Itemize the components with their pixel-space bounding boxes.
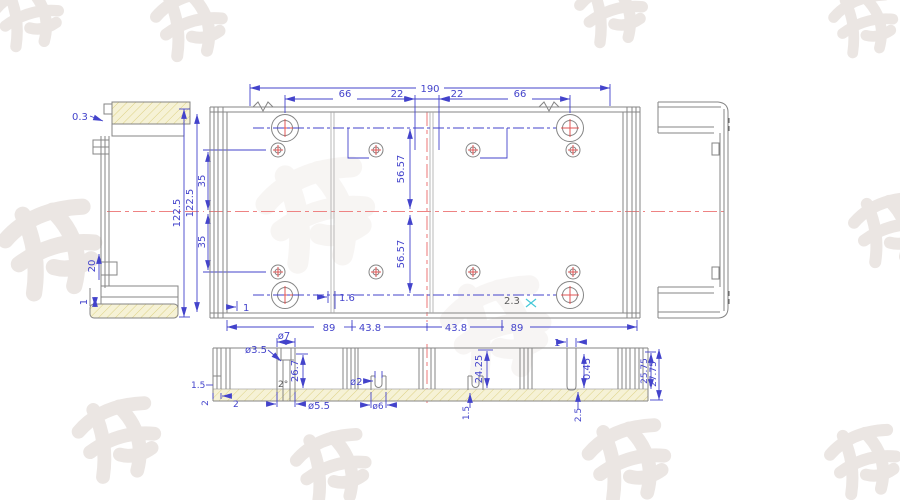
drawing-canvas: 0.3 20 1 122.5 122.5 35 35 — [0, 0, 900, 500]
dim-width-left: 66 — [339, 89, 352, 100]
dim-wall: 2.3 — [504, 296, 520, 307]
dim-corner-c: 2 — [233, 400, 239, 410]
dim-pitch-upper: 56.57 — [396, 155, 407, 184]
dim-width-center-left: 22 — [391, 89, 404, 100]
dim-width-total: 190 — [420, 84, 439, 95]
dim-width-center-right: 22 — [451, 89, 464, 100]
dim-height-total: 122.5 — [172, 199, 183, 228]
dim-channel-offset: 1.5 — [462, 406, 472, 420]
dim-offset-lower: 35 — [197, 236, 208, 249]
left-dimensions: 122.5 122.5 35 35 — [172, 109, 266, 317]
dim-taper: 0.45 — [582, 358, 593, 380]
side-view-right — [658, 102, 729, 318]
dim-corner-b: 2 — [201, 400, 211, 406]
dim-slot-width: 1 — [554, 338, 560, 349]
dim-channel-dia: ø6 — [372, 402, 384, 412]
dim-boss-wall: 1 — [243, 303, 249, 314]
centerlines — [107, 112, 724, 403]
dim-height-c: 27.75 — [649, 361, 659, 387]
dim-draft: 2° — [278, 380, 288, 390]
dim-bottom-center-left: 43.8 — [359, 323, 381, 334]
watermark — [0, 0, 900, 500]
dim-height-inner: 122.5 — [185, 189, 196, 218]
dim-offset-upper: 35 — [197, 175, 208, 188]
dim-lip: 0.3 — [72, 112, 88, 123]
dim-pitch-lower: 56.57 — [396, 240, 407, 269]
dim-base-thk: 2.5 — [574, 408, 584, 422]
dim-height-a: 24.25 — [474, 355, 485, 384]
dim-bottom-center-right: 43.8 — [445, 323, 467, 334]
dim-base: 1 — [79, 299, 90, 305]
dim-bottom-left: 89 — [323, 323, 336, 334]
dim-boss-dia: ø5.5 — [308, 401, 330, 412]
dim-bore-large: ø7 — [278, 331, 290, 342]
dim-corner-a: 1.5 — [191, 381, 205, 391]
dim-width-right: 66 — [514, 89, 527, 100]
dim-channel-bore: ø2 — [350, 377, 362, 388]
dim-bottom-right: 89 — [511, 323, 524, 334]
dim-boss-height: 26.7 — [290, 360, 301, 382]
dim-tab: 20 — [87, 260, 98, 273]
dim-bore-small: ø3.5 — [245, 345, 267, 356]
dim-rib: 1.6 — [339, 293, 355, 304]
